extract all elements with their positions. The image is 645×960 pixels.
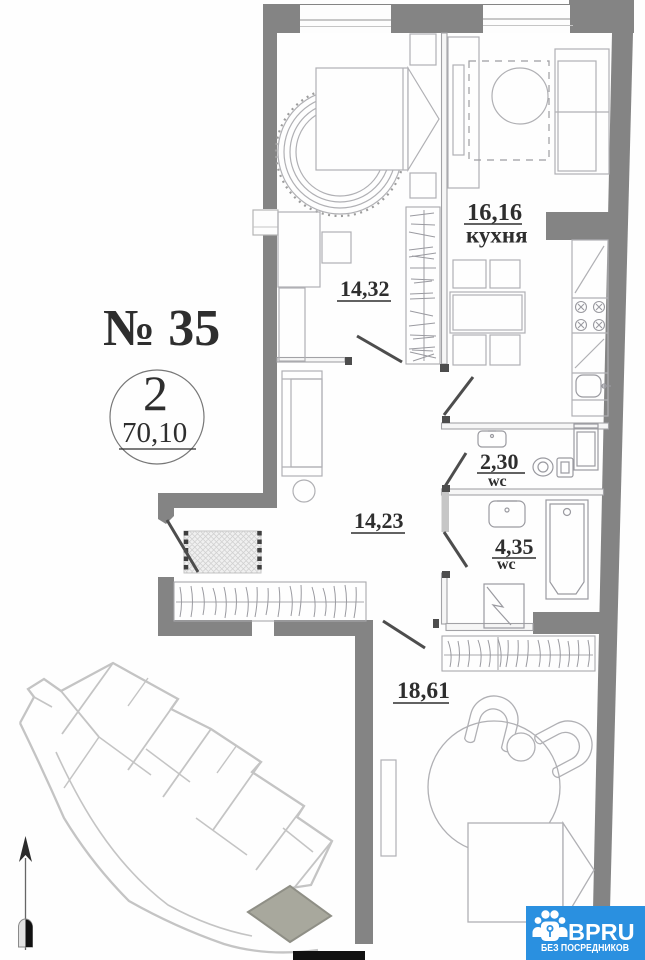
svg-text:14,23: 14,23 <box>354 508 404 533</box>
svg-text:№ 35: № 35 <box>103 300 220 357</box>
svg-text:wc: wc <box>488 473 507 490</box>
svg-text:BPRU: BPRU <box>568 919 635 945</box>
svg-text:2,30: 2,30 <box>480 449 519 474</box>
svg-text:кухня: кухня <box>466 223 528 248</box>
svg-text:70,10: 70,10 <box>122 417 187 449</box>
svg-text:wc: wc <box>497 556 516 573</box>
svg-text:2: 2 <box>143 365 168 421</box>
svg-text:14,32: 14,32 <box>340 276 390 301</box>
svg-text:БЕЗ ПОСРЕДНИКОВ: БЕЗ ПОСРЕДНИКОВ <box>541 943 629 954</box>
svg-text:18,61: 18,61 <box>397 678 450 704</box>
